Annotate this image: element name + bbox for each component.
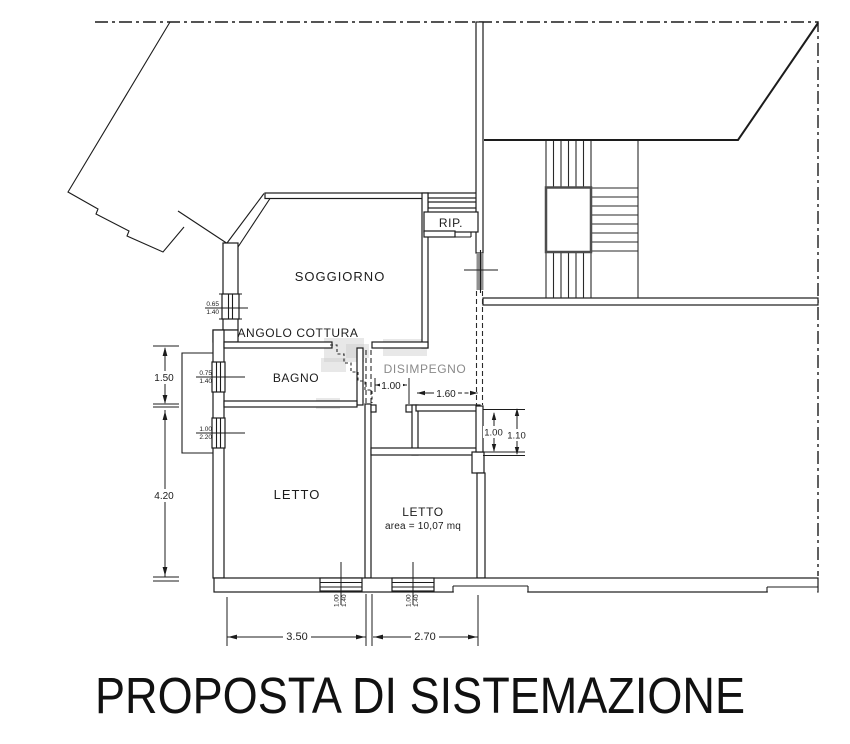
dim-window-bed-right-h: 1.40 xyxy=(413,594,420,607)
room-area-letto-piccolo: area = 10,07 mq xyxy=(385,521,461,532)
wall-stair-south xyxy=(483,298,818,305)
wall-bedroom-divider xyxy=(365,404,371,578)
room-label-letto-piccolo: LETTO xyxy=(402,505,443,519)
door-bedroom-left xyxy=(196,418,245,448)
dim-window-bed-right-w: 1.00 xyxy=(406,594,413,607)
wall-bagno-bottom xyxy=(224,401,357,407)
room-label-soggiorno: SOGGIORNO xyxy=(295,269,386,284)
wall-soggiorno-top xyxy=(265,193,428,199)
stairwell-entrance xyxy=(464,250,498,293)
wall-pilaster xyxy=(472,452,484,473)
dim-stair-opening-inner: 1.00 xyxy=(484,428,503,439)
stair-flight-down xyxy=(546,253,591,299)
room-label-angolo-cottura: ANGOLO COTTURA xyxy=(237,326,358,340)
dim-window-living-w: 0.65 xyxy=(206,301,219,308)
dim-hall-width: 1.00 xyxy=(381,381,401,392)
room-label-rip: RIP. xyxy=(439,216,463,230)
wall-stairwell-lower xyxy=(477,473,485,578)
stair-landing xyxy=(546,188,591,253)
wall-rip-band-outer xyxy=(428,193,478,198)
dim-left-lower: 4.20 xyxy=(154,491,174,502)
stair-flight-up xyxy=(546,141,591,187)
walls xyxy=(213,22,818,593)
dim-stair-opening-outer: 1.10 xyxy=(507,431,526,442)
dim-window-bath-h: 1.40 xyxy=(199,378,212,385)
wall-rip-band-inner xyxy=(428,202,478,208)
wall-cottura-bottom-right xyxy=(372,342,428,348)
rip-door-step xyxy=(455,232,471,237)
dim-bottom-right: 2.70 xyxy=(414,631,435,643)
entrance-cross-mark xyxy=(464,250,498,293)
dim-window-bed-left-w: 1.00 xyxy=(334,594,341,607)
room-labels: SOGGIORNO ANGOLO COTTURA BAGNO DISIMPEGN… xyxy=(237,216,466,532)
wall-letto2-top xyxy=(371,448,480,455)
dim-window-bath-w: 0.75 xyxy=(199,370,212,377)
window-bath xyxy=(196,362,245,392)
drawing-title: PROPOSTA DI SISTEMAZIONE xyxy=(95,667,745,724)
wall-stairwell-mid xyxy=(476,406,483,452)
floor-plan-page: 1.50 4.20 3.50 2.70 1.00 1.60 1.00 1.10 … xyxy=(0,0,850,744)
dim-bottom-left: 3.50 xyxy=(286,631,307,643)
staircase xyxy=(546,141,638,298)
wall-door-stub-left xyxy=(371,405,376,412)
wall-rip-bottom xyxy=(424,231,455,237)
dim-window-bed-left-h: 1.40 xyxy=(341,594,348,607)
stair-treads-right xyxy=(591,188,638,251)
dim-passage-width: 1.60 xyxy=(436,389,456,400)
wall-bagno-right xyxy=(357,348,363,405)
dim-window-living-h: 1.40 xyxy=(206,309,219,316)
room-label-letto-grande: LETTO xyxy=(274,487,321,502)
wall-stair-north xyxy=(484,23,818,140)
room-label-disimpegno: DISIMPEGNO xyxy=(384,362,467,376)
floor-plan-svg: 1.50 4.20 3.50 2.70 1.00 1.60 1.00 1.10 … xyxy=(0,0,850,744)
wall-cottura-bottom-left xyxy=(224,342,332,348)
dim-door-bedroom-w: 1.00 xyxy=(199,426,212,433)
wall-hall-south xyxy=(416,405,480,411)
room-label-bagno: BAGNO xyxy=(273,371,319,385)
dim-left-upper: 1.50 xyxy=(154,373,174,384)
exterior-outline xyxy=(68,22,270,252)
dim-door-bedroom-h: 2.20 xyxy=(199,434,212,441)
